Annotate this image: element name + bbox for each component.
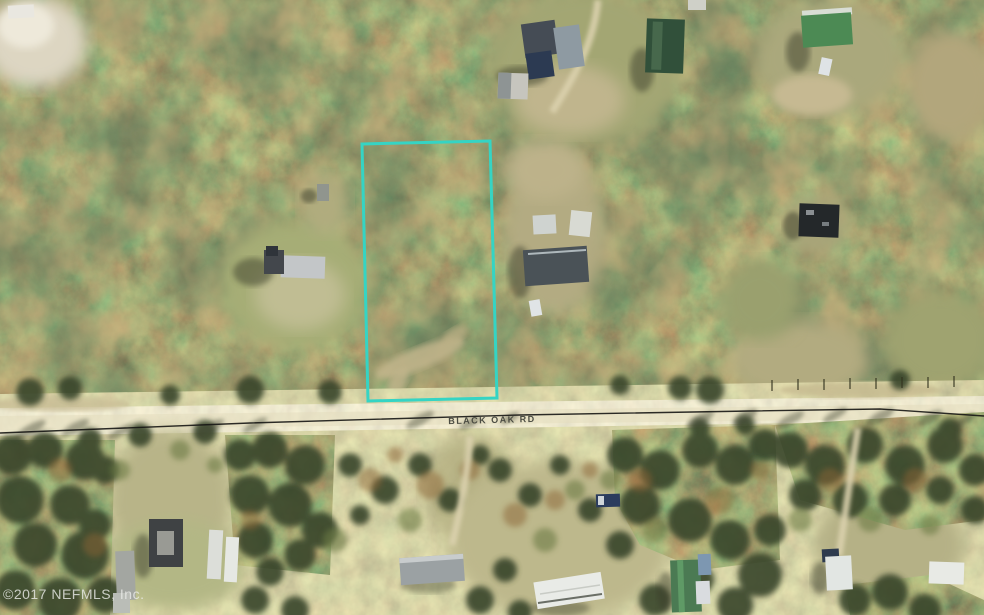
aerial-photo: BLACK OAK RD ©2017 NEFMLS, Inc.: [0, 0, 984, 615]
vehicle-truck: [596, 494, 620, 508]
trailer-bottom-right: [929, 561, 965, 584]
shed-top-center-west: [498, 72, 529, 99]
building-top-left-shed: [8, 4, 35, 18]
aerial-photo-viewport: BLACK OAK RD ©2017 NEFMLS, Inc.: [0, 0, 984, 615]
watermark: ©2017 NEFMLS, Inc.: [3, 586, 144, 602]
